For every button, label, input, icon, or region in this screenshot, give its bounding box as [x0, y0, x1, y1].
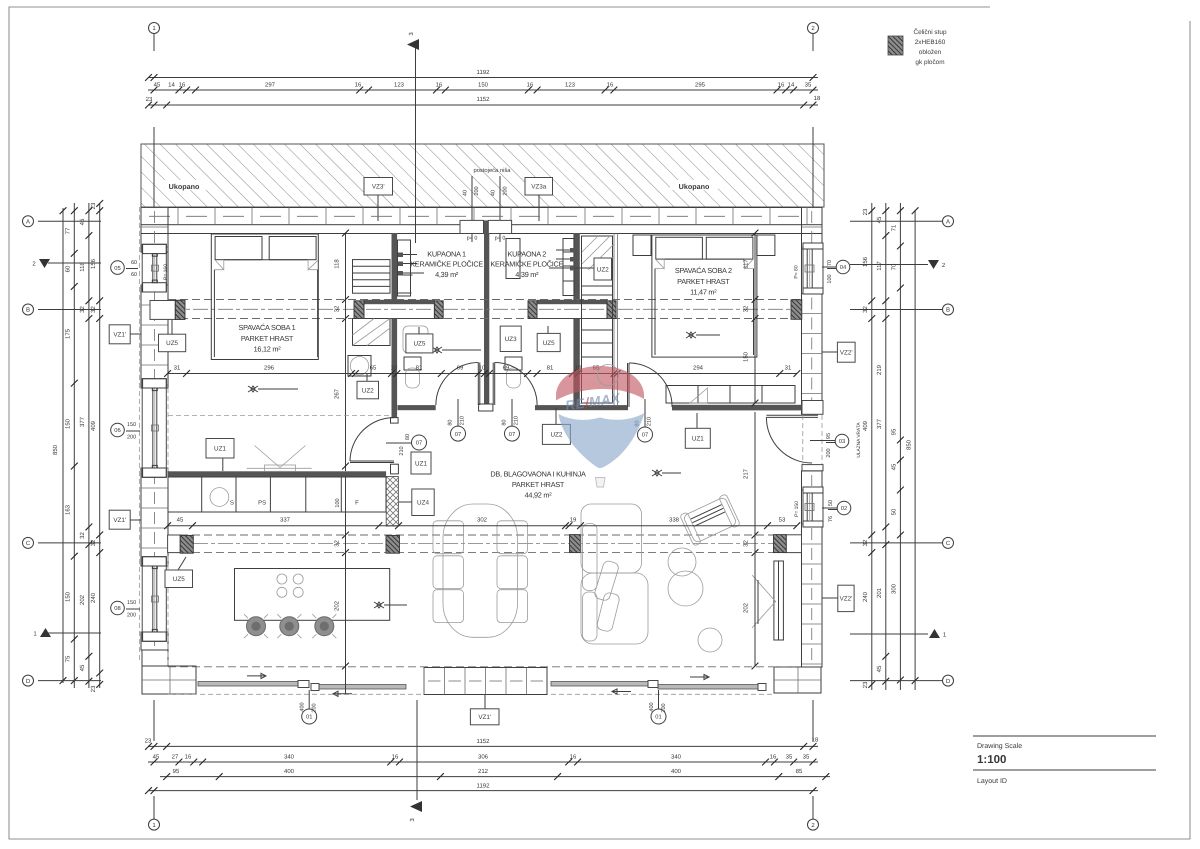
- svg-text:07: 07: [509, 431, 515, 438]
- svg-text:118: 118: [334, 259, 341, 269]
- svg-text:69: 69: [503, 365, 510, 372]
- svg-text:200: 200: [127, 613, 136, 619]
- svg-text:05: 05: [114, 265, 120, 272]
- svg-text:23: 23: [862, 208, 869, 215]
- svg-text:Drawing Scale: Drawing Scale: [977, 742, 1022, 750]
- svg-text:50: 50: [828, 500, 834, 506]
- svg-text:156: 156: [862, 256, 869, 267]
- svg-text:117: 117: [876, 261, 883, 271]
- svg-text:80: 80: [448, 420, 454, 426]
- svg-text:35: 35: [805, 82, 812, 89]
- svg-text:A: A: [26, 218, 30, 225]
- svg-text:60: 60: [131, 272, 137, 278]
- svg-text:45: 45: [891, 463, 898, 470]
- svg-text:UZ1: UZ1: [692, 436, 704, 443]
- svg-text:219: 219: [876, 364, 883, 375]
- svg-text:14: 14: [168, 82, 175, 89]
- svg-text:150: 150: [64, 418, 71, 429]
- svg-text:07: 07: [416, 440, 422, 447]
- svg-text:KUPAONA 2: KUPAONA 2: [508, 250, 547, 259]
- svg-text:1152: 1152: [477, 96, 491, 103]
- svg-text:08: 08: [114, 605, 120, 612]
- svg-text:377: 377: [876, 418, 883, 429]
- svg-text:ULAZNA VRATA: ULAZNA VRATA: [856, 422, 862, 458]
- svg-text:16: 16: [607, 82, 614, 89]
- svg-text:10: 10: [479, 365, 486, 372]
- svg-text:UZ2: UZ2: [550, 432, 562, 439]
- svg-text:75: 75: [64, 655, 71, 662]
- svg-text:UZ2: UZ2: [362, 387, 374, 394]
- svg-text:200: 200: [826, 448, 832, 457]
- svg-text:175: 175: [64, 328, 71, 339]
- svg-text:VZ3a: VZ3a: [531, 184, 547, 191]
- svg-text:77: 77: [64, 227, 71, 234]
- svg-text:400: 400: [300, 702, 306, 711]
- svg-text:C: C: [946, 540, 951, 547]
- svg-text:296: 296: [264, 365, 275, 372]
- svg-text:32: 32: [334, 305, 341, 312]
- svg-text:1152: 1152: [477, 738, 491, 745]
- svg-text:150: 150: [743, 351, 750, 362]
- svg-text:302: 302: [477, 517, 488, 524]
- svg-text:02: 02: [841, 505, 847, 512]
- svg-text:150: 150: [478, 82, 489, 89]
- svg-text:06: 06: [114, 427, 120, 434]
- svg-text:UZ3: UZ3: [505, 336, 517, 343]
- svg-text:210: 210: [460, 416, 466, 425]
- svg-text:B: B: [26, 307, 30, 314]
- svg-text:4,39 m²: 4,39 m²: [515, 270, 539, 279]
- svg-text:01: 01: [655, 714, 661, 721]
- svg-text:210: 210: [399, 446, 405, 455]
- svg-text:156: 156: [90, 258, 97, 269]
- svg-text:VZ2': VZ2': [840, 596, 853, 603]
- svg-text:Layout ID: Layout ID: [977, 778, 1007, 785]
- svg-text:240: 240: [90, 592, 97, 603]
- svg-text:150: 150: [64, 591, 71, 602]
- svg-text:50: 50: [891, 508, 898, 515]
- svg-text:p= 0: p= 0: [467, 236, 478, 242]
- svg-text:95: 95: [826, 433, 832, 439]
- svg-text:45: 45: [79, 664, 86, 671]
- svg-text:71: 71: [891, 224, 898, 231]
- svg-text:32: 32: [334, 540, 341, 547]
- svg-text:300: 300: [891, 583, 898, 594]
- svg-text:16,12 m²: 16,12 m²: [254, 345, 282, 354]
- svg-text:UZ2: UZ2: [597, 266, 609, 273]
- svg-text:60: 60: [131, 260, 137, 266]
- svg-text:UZ5: UZ5: [166, 340, 178, 347]
- svg-text:Ukopano: Ukopano: [169, 182, 200, 191]
- svg-text:210: 210: [647, 417, 653, 426]
- svg-text:Čelični stup: Čelični stup: [913, 28, 946, 36]
- svg-text:VZ1': VZ1': [113, 517, 126, 524]
- svg-text:40: 40: [491, 190, 497, 196]
- svg-text:04: 04: [840, 264, 847, 271]
- svg-text:D: D: [26, 678, 31, 685]
- svg-text:338: 338: [669, 517, 680, 524]
- svg-text:PARKET HRAST: PARKET HRAST: [677, 277, 730, 286]
- svg-text:217: 217: [743, 468, 750, 479]
- svg-text:16: 16: [355, 82, 362, 89]
- svg-text:200: 200: [127, 435, 136, 441]
- svg-text:PARKET HRAST: PARKET HRAST: [512, 480, 565, 489]
- svg-text:2xHEB160: 2xHEB160: [915, 39, 946, 46]
- svg-text:210: 210: [514, 416, 520, 425]
- svg-text:45: 45: [177, 517, 184, 524]
- svg-text:409: 409: [90, 420, 97, 431]
- svg-text:16: 16: [436, 82, 443, 89]
- svg-text:VZ3': VZ3': [372, 184, 385, 191]
- svg-text:F: F: [355, 500, 359, 507]
- svg-text:80: 80: [405, 434, 411, 440]
- svg-text:53: 53: [779, 517, 786, 524]
- svg-text:80: 80: [502, 420, 508, 426]
- svg-text:1192: 1192: [477, 69, 491, 76]
- svg-text:409: 409: [862, 420, 869, 431]
- svg-text:23: 23: [862, 681, 869, 688]
- svg-text:100: 100: [827, 274, 833, 283]
- svg-text:306: 306: [478, 754, 489, 761]
- svg-text:400: 400: [284, 768, 295, 775]
- svg-text:69: 69: [457, 365, 464, 372]
- svg-text:95: 95: [891, 428, 898, 435]
- svg-text:32: 32: [743, 540, 750, 547]
- svg-text:Ukopano: Ukopano: [679, 182, 710, 191]
- svg-text:4,39 m²: 4,39 m²: [435, 270, 459, 279]
- svg-text:01: 01: [306, 714, 312, 721]
- svg-text:31: 31: [785, 365, 792, 372]
- svg-text:16: 16: [770, 754, 777, 761]
- svg-text:202: 202: [79, 594, 86, 605]
- svg-text:UZ4: UZ4: [417, 500, 429, 507]
- svg-text:163: 163: [64, 504, 71, 515]
- svg-text:212: 212: [478, 768, 489, 775]
- svg-text:KERAMIČKE PLOČICE: KERAMIČKE PLOČICE: [490, 260, 563, 269]
- svg-text:postojeća niša: postojeća niša: [473, 167, 511, 174]
- svg-text:16: 16: [185, 754, 192, 761]
- svg-text:340: 340: [284, 754, 295, 761]
- svg-text:35: 35: [803, 754, 810, 761]
- svg-text:123: 123: [394, 82, 405, 89]
- svg-text:KUPAONA 1: KUPAONA 1: [427, 250, 466, 259]
- svg-text:23: 23: [90, 202, 97, 209]
- svg-text:32: 32: [79, 532, 86, 539]
- svg-text:1:100: 1:100: [977, 754, 1006, 766]
- svg-text:100: 100: [335, 498, 341, 507]
- svg-text:C: C: [26, 540, 31, 547]
- svg-text:S: S: [230, 500, 234, 507]
- svg-text:117: 117: [743, 259, 750, 269]
- svg-text:10: 10: [391, 365, 398, 372]
- svg-text:44,92 m²: 44,92 m²: [525, 491, 553, 500]
- svg-text:07: 07: [642, 432, 648, 439]
- svg-text:obložen: obložen: [919, 49, 942, 56]
- svg-text:PARKET HRAST: PARKET HRAST: [241, 334, 294, 343]
- svg-text:45: 45: [876, 665, 883, 672]
- svg-text:123: 123: [565, 82, 576, 89]
- svg-text:200: 200: [474, 186, 480, 195]
- svg-text:850: 850: [906, 439, 913, 450]
- svg-text:85: 85: [796, 768, 803, 775]
- svg-text:240: 240: [862, 591, 869, 602]
- svg-text:1192: 1192: [477, 783, 491, 790]
- svg-text:16: 16: [179, 82, 186, 89]
- svg-text:UZ1: UZ1: [214, 446, 226, 453]
- svg-text:150: 150: [127, 600, 136, 606]
- svg-text:VZ1': VZ1': [113, 332, 126, 339]
- svg-text:16: 16: [570, 754, 577, 761]
- svg-text:150: 150: [127, 422, 136, 428]
- svg-text:gk pločom: gk pločom: [915, 59, 944, 66]
- svg-text:81: 81: [416, 365, 423, 372]
- svg-text:202: 202: [743, 602, 750, 613]
- svg-text:31: 31: [174, 365, 181, 372]
- svg-text:07: 07: [455, 431, 461, 438]
- svg-text:200: 200: [661, 703, 667, 712]
- svg-text:267: 267: [334, 388, 341, 399]
- svg-text:B: B: [946, 307, 950, 314]
- svg-text:11,47 m²: 11,47 m²: [690, 288, 717, 297]
- svg-text:UZ5: UZ5: [413, 341, 425, 348]
- svg-text:19: 19: [570, 517, 577, 524]
- svg-text:45: 45: [154, 82, 161, 89]
- svg-text:DB, BLAGOVAONA I KUHINJA: DB, BLAGOVAONA I KUHINJA: [490, 470, 586, 479]
- svg-text:UZ5: UZ5: [543, 340, 555, 347]
- svg-text:400: 400: [649, 702, 655, 711]
- svg-text:PS: PS: [258, 500, 266, 507]
- svg-text:p= 0: p= 0: [495, 236, 506, 242]
- svg-text:03: 03: [839, 438, 845, 445]
- svg-text:200: 200: [503, 186, 509, 195]
- svg-text:P= 150: P= 150: [794, 501, 800, 517]
- svg-text:95: 95: [173, 768, 180, 775]
- svg-text:295: 295: [695, 82, 706, 89]
- svg-text:16: 16: [392, 754, 399, 761]
- svg-text:297: 297: [265, 82, 276, 89]
- svg-text:27: 27: [172, 754, 179, 761]
- svg-text:202: 202: [334, 600, 341, 611]
- svg-text:377: 377: [79, 416, 86, 427]
- svg-text:A: A: [946, 218, 950, 225]
- svg-text:35: 35: [786, 754, 793, 761]
- svg-text:23: 23: [146, 96, 153, 103]
- svg-text:SPAVAĆA SOBA 1: SPAVAĆA SOBA 1: [239, 323, 296, 332]
- svg-text:SPAVAĆA SOBA 2: SPAVAĆA SOBA 2: [675, 266, 732, 275]
- svg-text:70: 70: [827, 260, 833, 266]
- svg-text:D: D: [946, 678, 951, 685]
- svg-text:400: 400: [671, 768, 682, 775]
- svg-text:45: 45: [153, 754, 160, 761]
- svg-text:UZ1: UZ1: [415, 460, 427, 467]
- svg-text:65: 65: [370, 365, 377, 372]
- svg-text:16: 16: [527, 82, 534, 89]
- svg-text:14: 14: [788, 82, 795, 89]
- svg-text:45: 45: [876, 216, 883, 223]
- svg-text:23: 23: [90, 685, 97, 692]
- svg-text:VZ1': VZ1': [478, 714, 491, 721]
- svg-text:KERAMIČKE PLOČICE: KERAMIČKE PLOČICE: [410, 260, 483, 269]
- svg-text:81: 81: [547, 365, 554, 372]
- svg-text:201: 201: [876, 587, 883, 598]
- svg-text:32: 32: [743, 305, 750, 312]
- svg-text:76: 76: [828, 516, 834, 522]
- svg-text:40: 40: [463, 190, 469, 196]
- svg-text:200: 200: [312, 703, 318, 712]
- svg-text:23: 23: [145, 738, 152, 745]
- svg-text:VZ2': VZ2': [840, 349, 853, 356]
- svg-text:294: 294: [693, 365, 704, 372]
- svg-text:850: 850: [52, 444, 59, 455]
- svg-text:P= 80: P= 80: [794, 265, 800, 278]
- svg-text:337: 337: [280, 517, 291, 524]
- svg-text:UZ5: UZ5: [173, 576, 185, 583]
- svg-text:18: 18: [814, 95, 821, 102]
- svg-text:16: 16: [778, 82, 785, 89]
- svg-text:60: 60: [64, 265, 71, 272]
- svg-text:340: 340: [671, 754, 682, 761]
